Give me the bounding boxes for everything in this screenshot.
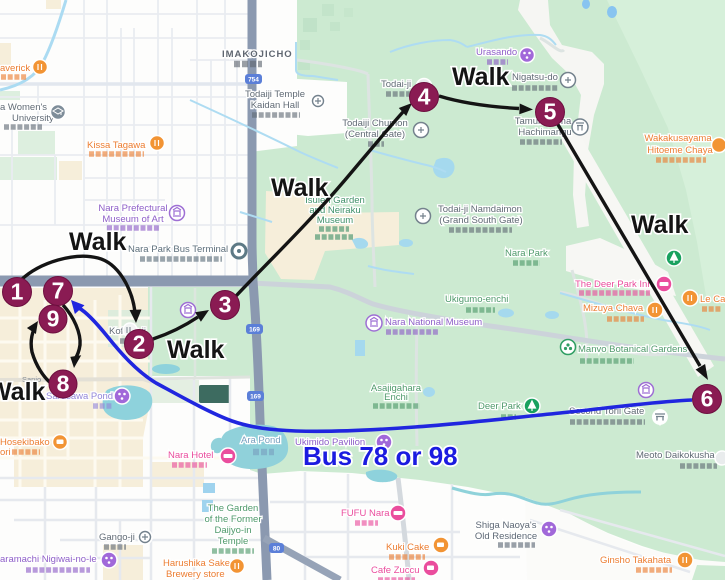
svg-text:Gango-ji: Gango-ji (99, 532, 135, 543)
svg-text:Manvo Botanical Gardens: Manvo Botanical Gardens (578, 344, 688, 355)
svg-text:University: University (12, 113, 54, 124)
svg-text:Le Ca: Le Ca (700, 294, 725, 305)
svg-text:4: 4 (418, 84, 431, 110)
svg-text:2: 2 (133, 331, 146, 357)
svg-text:Shiga Naoya's: Shiga Naoya's (476, 520, 537, 531)
svg-text:Walk: Walk (631, 211, 689, 239)
svg-text:(Grand South Gate): (Grand South Gate) (439, 215, 522, 226)
svg-text:Cafe Zuccu: Cafe Zuccu (371, 565, 420, 576)
svg-text:Walk: Walk (0, 378, 46, 406)
svg-text:Kuki Cake: Kuki Cake (386, 542, 429, 553)
svg-text:Brewery store: Brewery store (166, 569, 225, 580)
svg-text:7: 7 (52, 278, 65, 304)
svg-text:8: 8 (57, 371, 70, 397)
svg-text:Daijyo-in: Daijyo-in (215, 525, 252, 536)
svg-text:9: 9 (47, 306, 60, 332)
svg-text:FUFU Nara: FUFU Nara (341, 508, 390, 519)
svg-text:Enchi: Enchi (384, 392, 408, 403)
svg-text:5: 5 (544, 99, 557, 125)
svg-text:ori: ori (0, 447, 11, 458)
svg-text:Walk: Walk (452, 63, 510, 91)
svg-text:Kaidan Hall: Kaidan Hall (251, 100, 300, 111)
svg-text:Walk: Walk (69, 228, 127, 256)
svg-text:The Garden: The Garden (208, 503, 259, 514)
svg-text:Deer Park: Deer Park (478, 401, 521, 412)
svg-text:Kissa Tagawa: Kissa Tagawa (87, 140, 146, 151)
svg-text:Mizuya Chava: Mizuya Chava (583, 303, 644, 314)
svg-text:169: 169 (249, 327, 260, 334)
svg-text:Meoto Daikokusha: Meoto Daikokusha (636, 450, 715, 461)
svg-text:aramachi Nigiwai-no-le: aramachi Nigiwai-no-le (0, 554, 97, 565)
svg-text:a Women's: a Women's (0, 102, 47, 113)
svg-text:Nara Hotel: Nara Hotel (168, 450, 213, 461)
svg-text:Hitoeme Chaya: Hitoeme Chaya (647, 145, 713, 156)
svg-text:Todaiji Temple: Todaiji Temple (245, 89, 305, 100)
svg-text:Harushika Sake: Harushika Sake (163, 558, 230, 569)
svg-text:1: 1 (11, 279, 24, 305)
svg-text:Ginsho Takahata: Ginsho Takahata (600, 555, 672, 566)
svg-text:754: 754 (248, 77, 259, 84)
svg-text:Wakakusayama: Wakakusayama (644, 133, 712, 144)
svg-text:Nara National Museum: Nara National Museum (385, 317, 482, 328)
svg-text:averick: averick (0, 63, 30, 74)
svg-text:Todai-ji: Todai-ji (381, 79, 411, 90)
svg-text:Ukigumo-enchi: Ukigumo-enchi (445, 294, 508, 305)
svg-text:Nara Park: Nara Park (505, 248, 548, 259)
svg-text:The Deer Park Inn: The Deer Park Inn (575, 279, 653, 290)
svg-text:6: 6 (701, 386, 714, 412)
svg-text:Todai-ji Namdaimon: Todai-ji Namdaimon (438, 204, 522, 215)
svg-text:IMAKOJICHO: IMAKOJICHO (222, 49, 293, 60)
svg-text:Bus 78 or 98: Bus 78 or 98 (303, 441, 458, 471)
svg-text:Walk: Walk (167, 336, 225, 364)
svg-text:Ara Pond: Ara Pond (241, 435, 281, 446)
svg-text:Nara Park Bus Terminal: Nara Park Bus Terminal (128, 244, 228, 255)
svg-text:Museum of Art: Museum of Art (102, 214, 164, 225)
svg-text:Urasando: Urasando (476, 47, 517, 58)
svg-text:Museum: Museum (317, 215, 354, 226)
svg-text:169: 169 (250, 394, 261, 401)
svg-text:(Central Gate): (Central Gate) (345, 129, 405, 140)
svg-text:Nigatsu-do: Nigatsu-do (512, 72, 558, 83)
svg-text:Old Residence: Old Residence (475, 531, 537, 542)
svg-text:Walk: Walk (271, 174, 329, 202)
svg-text:of the Former: of the Former (204, 514, 261, 525)
svg-text:Temple: Temple (218, 536, 249, 547)
svg-text:Nara Prefectural: Nara Prefectural (98, 203, 167, 214)
svg-text:80: 80 (273, 546, 281, 553)
svg-text:3: 3 (219, 292, 232, 318)
